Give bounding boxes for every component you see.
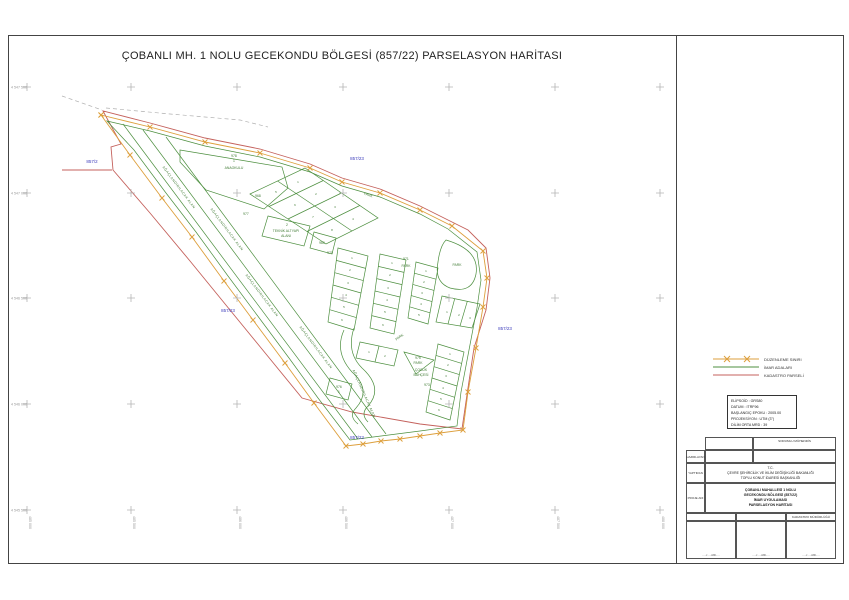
legend-label: DÜZENLEME SINIRI: [764, 357, 802, 362]
legend-label: İMAR ADALARI: [764, 365, 792, 370]
sorumlu-muhendis-header: SORUMLU MÜHENDİS: [753, 437, 836, 450]
proje-line: PARSELASYON HARİTASI: [706, 503, 835, 508]
yaptiran-content: T.C. ÇEVRE ŞEHİRCİLİK VE İKLİM DEĞİŞİKLİ…: [705, 463, 836, 483]
legend-item-kadastro: KADASTRO PARSELİ: [712, 371, 842, 379]
approval-box-2: ...../...../20.....: [736, 521, 786, 559]
map-title: ÇOBANLI MH. 1 NOLU GECEKONDU BÖLGESİ (85…: [8, 50, 676, 62]
kadastro-line-sample: [712, 371, 760, 379]
imar-line-sample: [712, 363, 760, 371]
projection-info-box: ELİPSOİD : GRS80 DATUM : ITRF96 BAŞLANGI…: [727, 395, 797, 429]
yaptiran-label: YAPTIRAN: [686, 463, 705, 483]
proje-adi-label: PROJE ADI: [686, 483, 705, 513]
hazirlayan-cell: [705, 450, 753, 463]
dilim-line: DİLİM ORTA MRD : 39: [731, 422, 796, 428]
panel-divider: [676, 35, 677, 564]
approval-col-2-header: [736, 513, 786, 521]
map-sheet: 857/2857/23857/23857/23857/239781ANAOKUL…: [0, 0, 849, 600]
approval-box-1: ...../...../20.....: [686, 521, 736, 559]
hazirlayan-cell-2: [753, 450, 836, 463]
kadastro-mudurlugu-header: KADASTRO MÜDÜRLÜĞÜ: [786, 513, 836, 521]
yaptiran-line: TOPLU KONUT İDARESİ BAŞKANLIĞI: [706, 476, 835, 481]
title-block: SORUMLU MÜHENDİS HAZIRLAYAN YAPTIRAN T.C…: [686, 437, 836, 559]
signature-box: [705, 437, 753, 450]
legend-item-imar: İMAR ADALARI: [712, 363, 842, 371]
proje-adi-content: ÇOBANLI MAHALLESİ 1 NOLU GECEKONDU BÖLGE…: [705, 483, 836, 513]
legend-item-duzenleme: DÜZENLEME SINIRI: [712, 355, 842, 363]
approval-col-1-header: [686, 513, 736, 521]
legend-label: KADASTRO PARSELİ: [764, 373, 804, 378]
duzenleme-line-sample: [712, 355, 760, 363]
hazirlayan-label: HAZIRLAYAN: [686, 450, 705, 463]
approval-box-3: ...../...../20.....: [786, 521, 836, 559]
legend: DÜZENLEME SINIRI İMAR ADALARI KADASTRO P…: [712, 355, 842, 379]
